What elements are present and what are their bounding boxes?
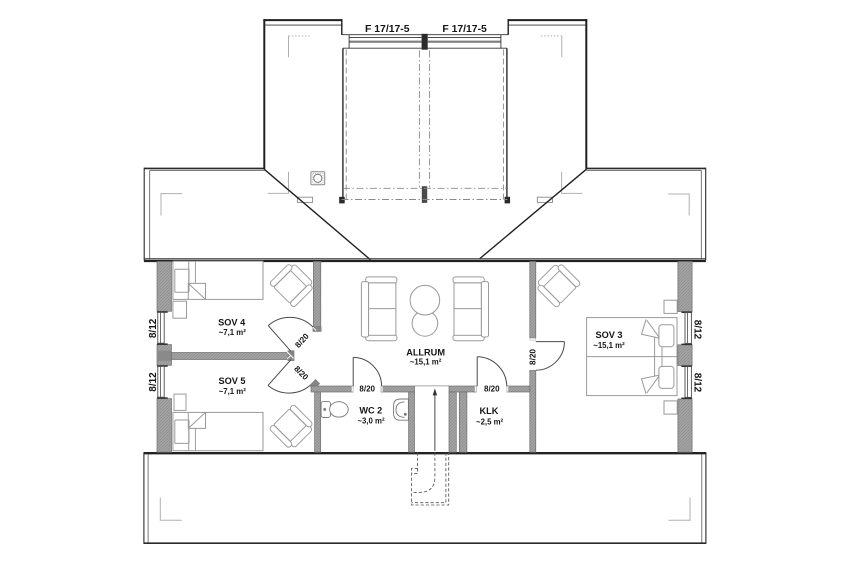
- svg-text:~7,1 m²: ~7,1 m²: [219, 328, 246, 337]
- svg-text:8/20: 8/20: [484, 384, 500, 393]
- svg-text:KLK: KLK: [480, 406, 499, 416]
- svg-text:8/12: 8/12: [691, 320, 702, 340]
- svg-text:8/20: 8/20: [528, 349, 537, 365]
- svg-text:WC 2: WC 2: [359, 406, 382, 416]
- svg-text:~15,1 m²: ~15,1 m²: [410, 358, 442, 367]
- svg-text:F 17/17-5: F 17/17-5: [442, 24, 487, 35]
- svg-text:SOV 3: SOV 3: [595, 330, 622, 340]
- svg-text:ALLRUM: ALLRUM: [406, 348, 445, 358]
- svg-text:8/12: 8/12: [148, 318, 159, 338]
- svg-text:F 17/17-5: F 17/17-5: [365, 24, 410, 35]
- svg-text:~2,5 m²: ~2,5 m²: [476, 417, 503, 426]
- svg-text:~7,1 m²: ~7,1 m²: [219, 387, 246, 396]
- svg-text:8/20: 8/20: [359, 384, 375, 393]
- svg-text:SOV 5: SOV 5: [218, 376, 245, 386]
- svg-text:SOV 4: SOV 4: [218, 317, 246, 327]
- svg-text:8/12: 8/12: [148, 372, 159, 392]
- svg-text:8/12: 8/12: [691, 373, 702, 393]
- svg-text:~15,1 m²: ~15,1 m²: [593, 341, 625, 350]
- svg-text:~3,0 m²: ~3,0 m²: [357, 416, 384, 425]
